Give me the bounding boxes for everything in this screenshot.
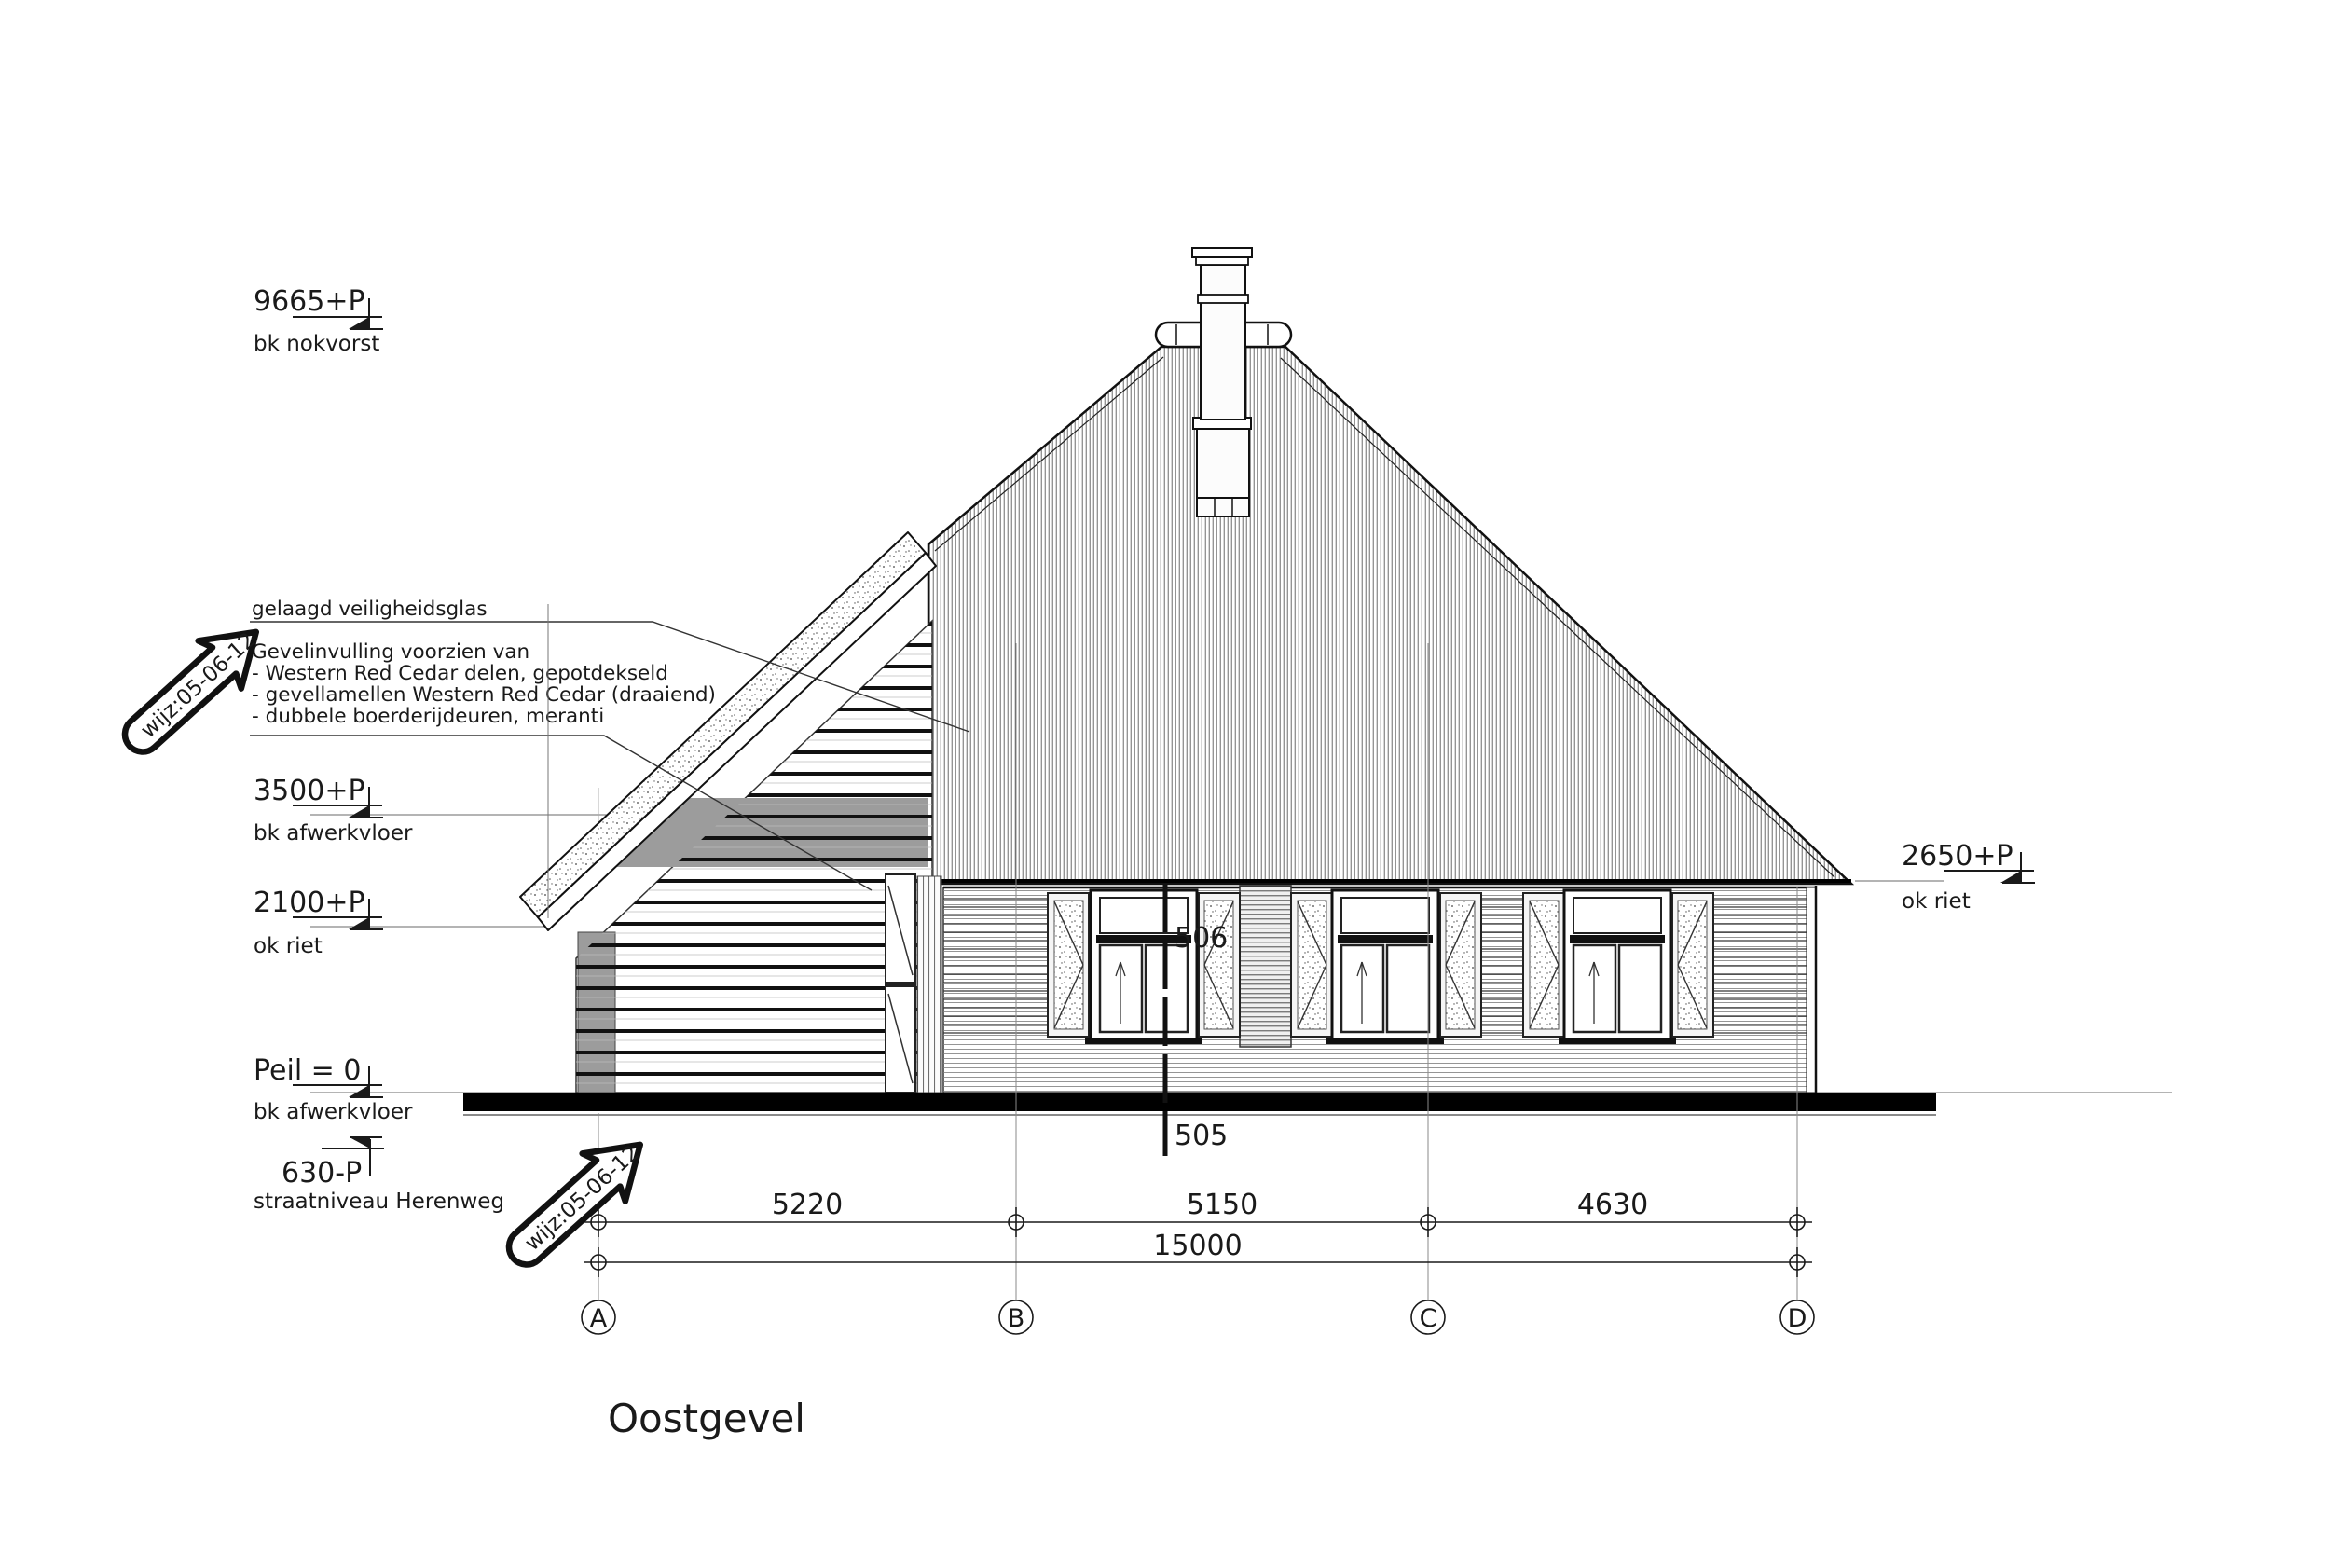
- grid-bubble-a: A: [590, 1304, 608, 1333]
- level-label: straatniveau Herenweg: [254, 1190, 504, 1214]
- louvre-barn-door: [1240, 886, 1291, 1047]
- section-marker-bottom: 505: [1175, 1120, 1228, 1152]
- grid-bubble-d: D: [1788, 1304, 1807, 1333]
- shutter: [1440, 893, 1481, 1037]
- chimney: [1192, 248, 1252, 516]
- level-value: Peil = 0: [254, 1054, 361, 1087]
- vertical-plank-strip: [917, 876, 941, 1093]
- shutter: [1048, 893, 1089, 1037]
- level-value: 2650+P: [1902, 840, 2013, 873]
- drawing-title: Oostgevel: [608, 1396, 805, 1441]
- dimension-segment-3: 4630: [1577, 1189, 1648, 1221]
- window: [1085, 890, 1202, 1044]
- level-label: bk nokvorst: [254, 332, 379, 356]
- shutter: [1523, 893, 1564, 1037]
- level-value: 9665+P: [254, 285, 365, 318]
- level-label: bk afwerkvloer: [254, 821, 413, 846]
- dimension-segment-1: 5220: [772, 1189, 843, 1221]
- corner-trim: [1807, 887, 1816, 1093]
- window: [1326, 890, 1444, 1044]
- annotation-facade-line: - Western Red Cedar delen, gepotdekseld: [252, 662, 668, 685]
- level-value: 3500+P: [254, 775, 365, 807]
- side-door: [886, 874, 915, 1093]
- level-label: ok riet: [1902, 889, 1971, 914]
- dimension-segment-2: 5150: [1187, 1189, 1257, 1221]
- shutter: [1291, 893, 1332, 1037]
- level-label: bk afwerkvloer: [254, 1100, 413, 1124]
- level-value: 2100+P: [254, 887, 365, 919]
- level-label: ok riet: [254, 934, 323, 958]
- annotation-facade-line: - dubbele boerderijdeuren, meranti: [252, 705, 604, 728]
- shutter: [1199, 893, 1240, 1037]
- window: [1559, 890, 1676, 1044]
- elevation-drawing-canvas: 506 505 5220 5150 4630 15000 A B C D 966…: [0, 0, 2336, 1568]
- grid-bubble-b: B: [1008, 1304, 1025, 1333]
- grid-bubble-c: C: [1420, 1304, 1437, 1333]
- chimney-cap: [1192, 248, 1252, 257]
- level-value: 630-P: [282, 1157, 362, 1190]
- annotation-facade-line: Gevelinvulling voorzien van: [252, 640, 529, 664]
- annotation-glass: gelaagd veiligheidsglas: [252, 598, 488, 621]
- dimension-total: 15000: [1153, 1230, 1242, 1262]
- annotation-facade-line: - gevellamellen Western Red Cedar (draai…: [252, 683, 716, 707]
- shutter: [1672, 893, 1713, 1037]
- section-marker-top: 506: [1175, 922, 1228, 955]
